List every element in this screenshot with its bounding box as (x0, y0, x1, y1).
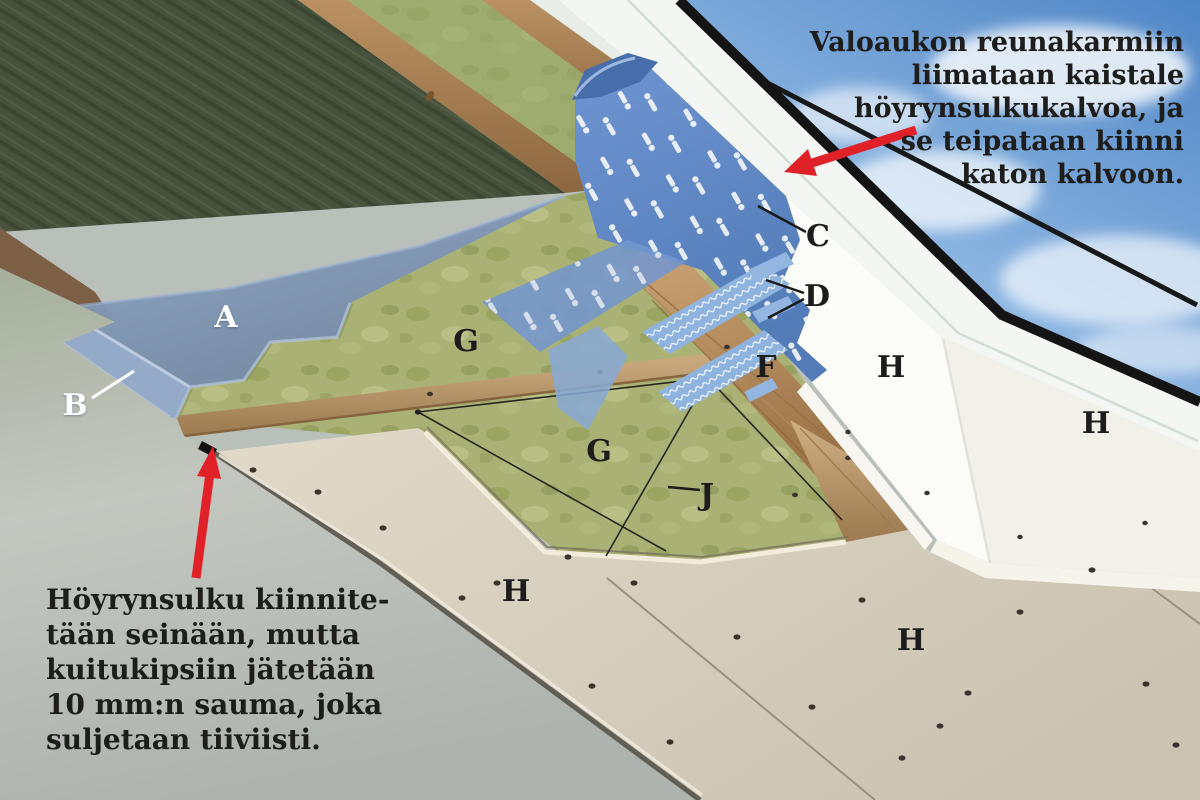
annotation-bottom-left: Höyrynsulku kiinnite- tään seinään, mutt… (46, 582, 389, 757)
annotation-bottom-left-line-2: tään seinään, mutta (46, 617, 389, 652)
annotation-top-right-line-4: se teipataan kiinni (810, 125, 1184, 158)
annotation-top-right-line-3: höyrynsulkukalvoa, ja (810, 92, 1184, 125)
annotation-top-right-line-2: liimataan kaistale (810, 59, 1184, 92)
part-label-g-2: G (586, 437, 612, 467)
part-label-j: J (700, 481, 714, 511)
annotation-bottom-left-line-1: Höyrynsulku kiinnite- (46, 582, 389, 617)
part-label-h-3: H (502, 577, 530, 607)
annotation-bottom-left-line-5: suljetaan tiiviisti. (46, 722, 389, 757)
part-label-f: F (755, 353, 776, 383)
part-label-c: C (806, 222, 830, 252)
part-label-h-4: H (897, 626, 925, 656)
annotation-top-right-line-5: katon kalvoon. (810, 158, 1184, 191)
annotation-top-right: Valoaukon reunakarmiin liimataan kaistal… (810, 26, 1184, 191)
construction-diagram: A B C D F G G H H H H J Valoaukon reunak… (0, 0, 1200, 800)
annotation-bottom-left-line-4: 10 mm:n sauma, joka (46, 687, 389, 722)
part-label-g-1: G (453, 327, 479, 357)
part-label-a: A (214, 303, 237, 333)
part-label-h-2: H (1082, 409, 1110, 439)
annotation-bottom-left-line-3: kuitukipsiin jätetään (46, 652, 389, 687)
part-label-h-1: H (877, 353, 905, 383)
part-label-b: B (62, 391, 87, 421)
part-label-d: D (804, 282, 830, 312)
annotation-top-right-line-1: Valoaukon reunakarmiin (810, 26, 1184, 59)
